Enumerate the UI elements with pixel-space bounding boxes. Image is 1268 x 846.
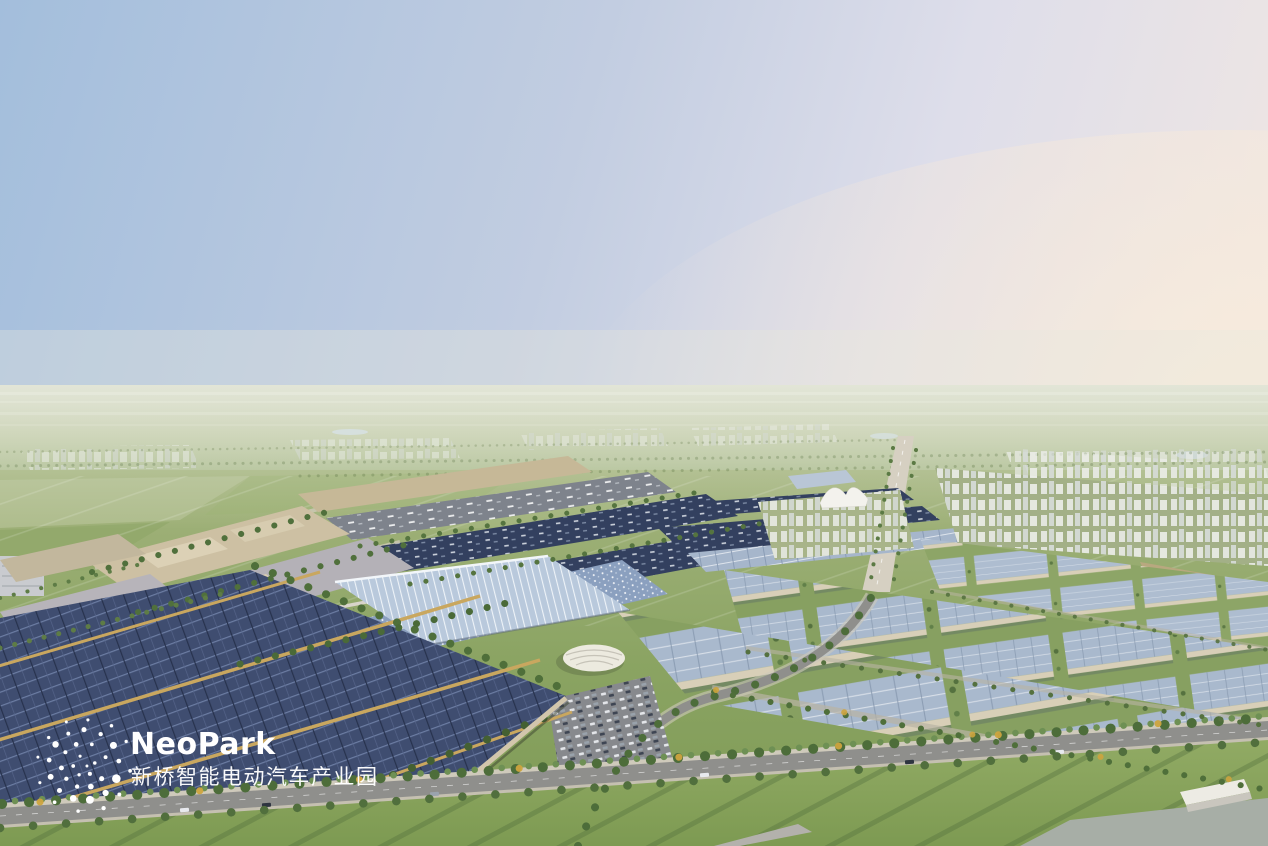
neopark-aerial-rendering: NeoPark 新桥智能电动汽车产业园 [0, 0, 1268, 846]
neopark-logo: NeoPark 新桥智能电动汽车产业园 [33, 712, 453, 822]
neopark-logo-icon [33, 714, 135, 816]
neopark-wordmark: NeoPark [130, 730, 276, 760]
neopark-subtitle: 新桥智能电动汽车产业园 [131, 767, 379, 788]
